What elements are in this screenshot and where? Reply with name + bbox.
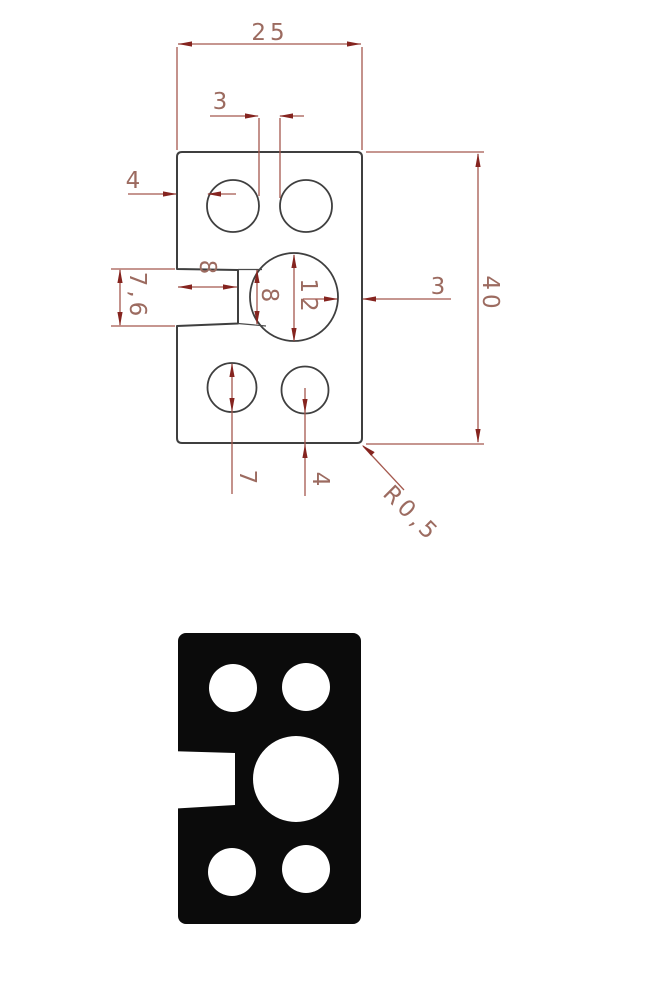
arrowhead: [475, 153, 480, 167]
silhouette-notch: [168, 751, 235, 809]
dim-overall-width: 25: [177, 20, 362, 150]
silhouette-hole-center: [253, 736, 339, 822]
silhouette-hole-top-left: [209, 664, 257, 712]
dim-label-top-holes-gap: 3: [213, 89, 232, 115]
hole-top-left: [207, 180, 259, 232]
silhouette-hole-top-right: [282, 663, 330, 711]
dim-label-corner-radius: R0,5: [378, 481, 445, 548]
arrowhead: [279, 113, 293, 118]
dim-label-center-hole-diameter: 12: [295, 278, 321, 315]
drawing-page: 25 3 4 7,6: [0, 0, 650, 982]
dim-corner-radius: R0,5: [362, 445, 444, 547]
dimensioned-view: 25 3 4 7,6: [111, 20, 503, 547]
dim-label-notch-depth: 8: [194, 260, 220, 279]
arrowhead: [117, 312, 122, 326]
arrowhead: [223, 284, 237, 289]
arrowhead: [475, 429, 480, 443]
silhouette-hole-bottom-left: [208, 848, 256, 896]
dim-label-bottom-hole-to-bottom-edge: 4: [307, 472, 333, 491]
dim-label-edge-to-top-hole: 4: [126, 168, 145, 194]
silhouette-hole-bottom-right: [282, 845, 330, 893]
arrowhead: [178, 284, 192, 289]
hole-top-right: [280, 180, 332, 232]
dim-label-notch-inner-height: 8: [256, 288, 282, 307]
silhouette-view: [168, 633, 361, 924]
arrowhead: [302, 444, 307, 458]
dim-label-notch-opening-height: 7,6: [124, 272, 150, 321]
arrowhead: [117, 269, 122, 283]
arrowhead: [362, 296, 376, 301]
dim-notch-opening-height: 7,6: [111, 269, 175, 326]
arrowhead: [245, 113, 259, 118]
arrowhead: [163, 191, 177, 196]
arrowhead: [178, 41, 192, 46]
arrowhead: [347, 41, 361, 46]
dim-label-center-hole-to-right-edge: 3: [431, 274, 450, 300]
dim-label-bottom-hole-diameter: 7: [234, 470, 260, 489]
dim-label-overall-width: 25: [251, 20, 288, 46]
dim-label-overall-height: 40: [477, 275, 503, 312]
arrowhead: [362, 445, 375, 456]
technical-drawing-canvas: 25 3 4 7,6: [0, 0, 650, 982]
